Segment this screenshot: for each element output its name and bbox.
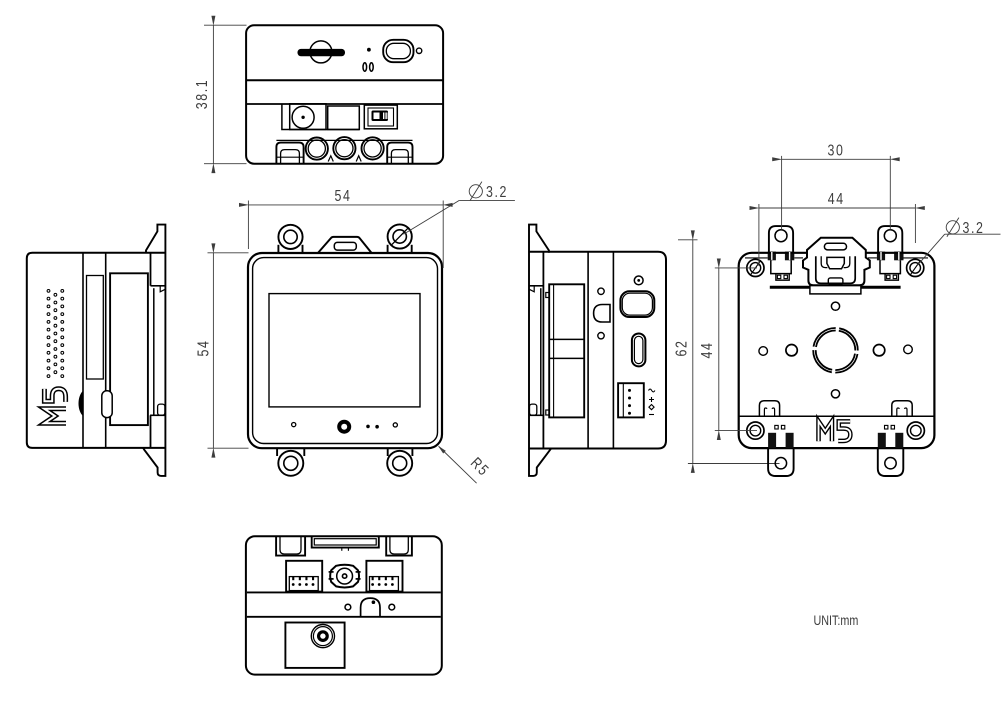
svg-text:30: 30 <box>828 141 845 159</box>
svg-text:R5: R5 <box>467 454 493 480</box>
svg-text:44: 44 <box>828 190 845 208</box>
svg-text:3.2: 3.2 <box>963 219 985 237</box>
svg-text:3.2: 3.2 <box>486 183 508 201</box>
svg-text:UNIT:mm: UNIT:mm <box>814 613 859 629</box>
svg-text:54: 54 <box>335 187 352 205</box>
svg-text:62: 62 <box>672 340 690 357</box>
svg-text:54: 54 <box>194 340 212 357</box>
svg-text:44: 44 <box>698 342 716 359</box>
svg-text:38.1: 38.1 <box>193 79 211 110</box>
